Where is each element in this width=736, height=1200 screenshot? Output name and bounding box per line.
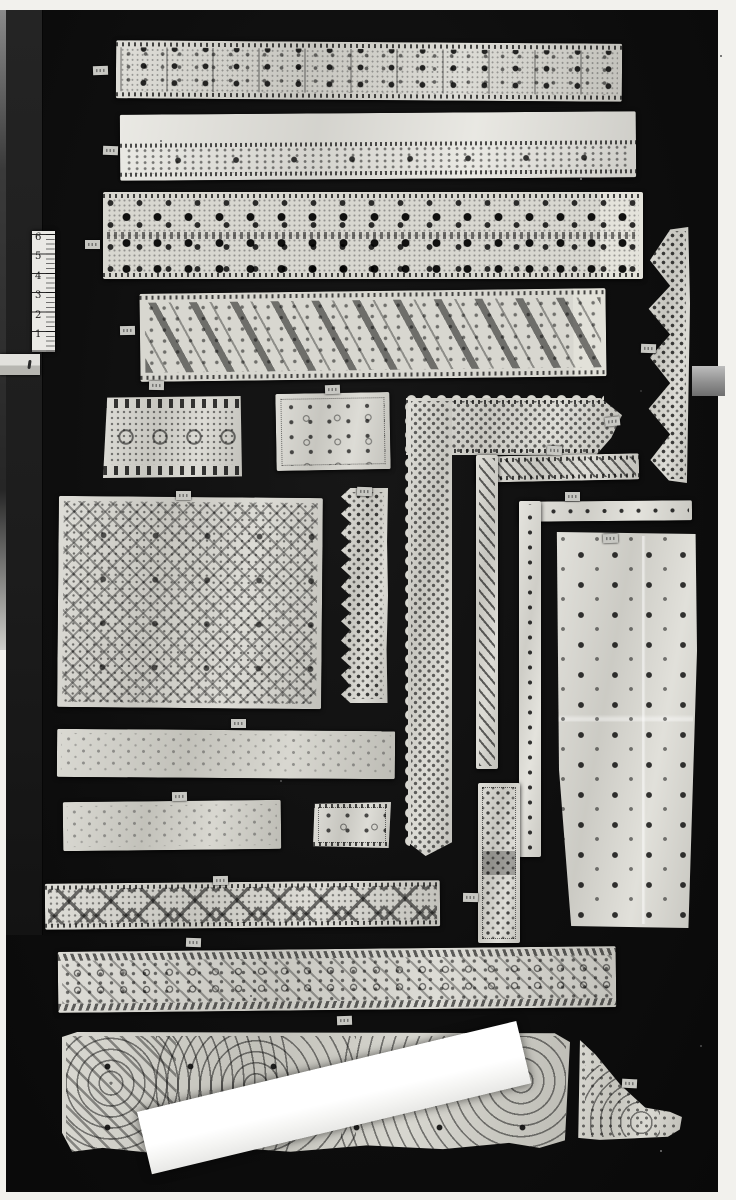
lace-band-3 [103, 192, 643, 279]
specimen-tag [603, 534, 618, 544]
specimen-tag [172, 792, 187, 801]
lace-corner-tape-horizontal-arm [519, 500, 692, 522]
ruler-mark: 4 [35, 272, 41, 282]
specimen-tag [325, 385, 340, 395]
lace-panel-wave [103, 396, 242, 478]
ruler-mark: 2 [35, 311, 41, 321]
specimen-tag [149, 381, 164, 390]
ruler-mark: 5 [35, 252, 41, 262]
lace-band-4 [139, 288, 606, 382]
lace-corner-tape-vertical-arm [519, 501, 541, 857]
specimen-tag [547, 446, 562, 456]
lace-panel-tiny [313, 802, 391, 848]
specimen-tag [622, 1079, 637, 1089]
lace-corner-large-picot-side [396, 400, 410, 850]
specimen-tag [231, 719, 246, 728]
specimen-tag [85, 240, 100, 249]
lace-corner-large-picot-top [404, 384, 604, 400]
specimen-tag [565, 492, 580, 501]
dust-specks [160, 140, 162, 142]
lace-corner-narrow-vertical-arm [476, 455, 498, 769]
lace-band-1 [116, 40, 622, 102]
lace-cloth-right [554, 532, 697, 928]
specimen-tag [176, 491, 191, 500]
lace-band-scroll [58, 946, 617, 1013]
ruler-mark: 6 [35, 233, 41, 243]
specimen-tag [641, 344, 656, 354]
specimen-tag [357, 487, 372, 497]
lace-panel-vertical [478, 783, 520, 943]
specimen-tag [120, 326, 135, 335]
specimen-tag [605, 416, 621, 427]
photograph: 6 5 4 3 2 1 [0, 0, 736, 1200]
specimen-tag [337, 1016, 352, 1026]
specimen-tag [463, 893, 478, 902]
specimen-tag [103, 146, 118, 156]
specimen-tag [186, 938, 201, 948]
lace-band-crosses [45, 880, 440, 929]
specimen-tag [93, 66, 108, 76]
gray-tape [692, 366, 725, 396]
ruler-mark: 1 [35, 330, 41, 340]
specimen-tag [213, 876, 228, 885]
lace-band-9 [63, 800, 282, 851]
lace-band-2 [120, 111, 636, 181]
ruler-mark: 3 [35, 291, 41, 301]
lace-corner-large-vertical-arm [408, 398, 452, 856]
photo-left-border-shadow [0, 10, 6, 650]
lace-band-8 [57, 729, 395, 779]
ruler: 6 5 4 3 2 1 [32, 231, 55, 352]
lace-corner-narrow-horizontal-arm [476, 453, 640, 482]
left-margin-marker-strip [0, 354, 40, 375]
lace-panel-small [275, 392, 390, 471]
board-left-edge [6, 10, 43, 935]
lace-panel-lattice [57, 496, 323, 709]
